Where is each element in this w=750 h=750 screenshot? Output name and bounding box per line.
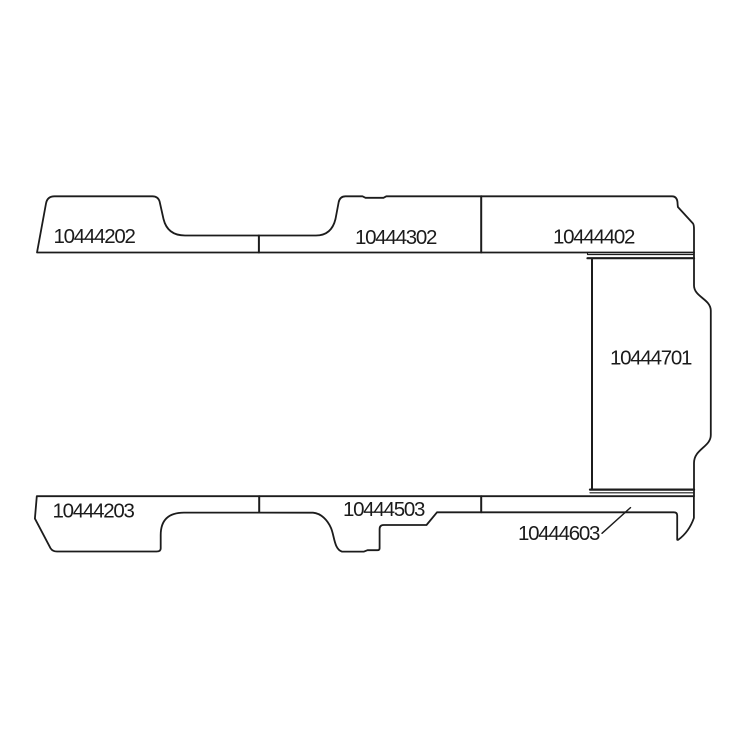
svg-text:10444701: 10444701 [610,347,692,370]
svg-text:10444503: 10444503 [343,498,425,521]
svg-text:10444203: 10444203 [53,500,135,523]
svg-text:10444202: 10444202 [54,225,136,248]
svg-text:10444302: 10444302 [355,226,437,249]
svg-text:10444603: 10444603 [518,522,600,545]
svg-text:10444402: 10444402 [553,226,635,249]
